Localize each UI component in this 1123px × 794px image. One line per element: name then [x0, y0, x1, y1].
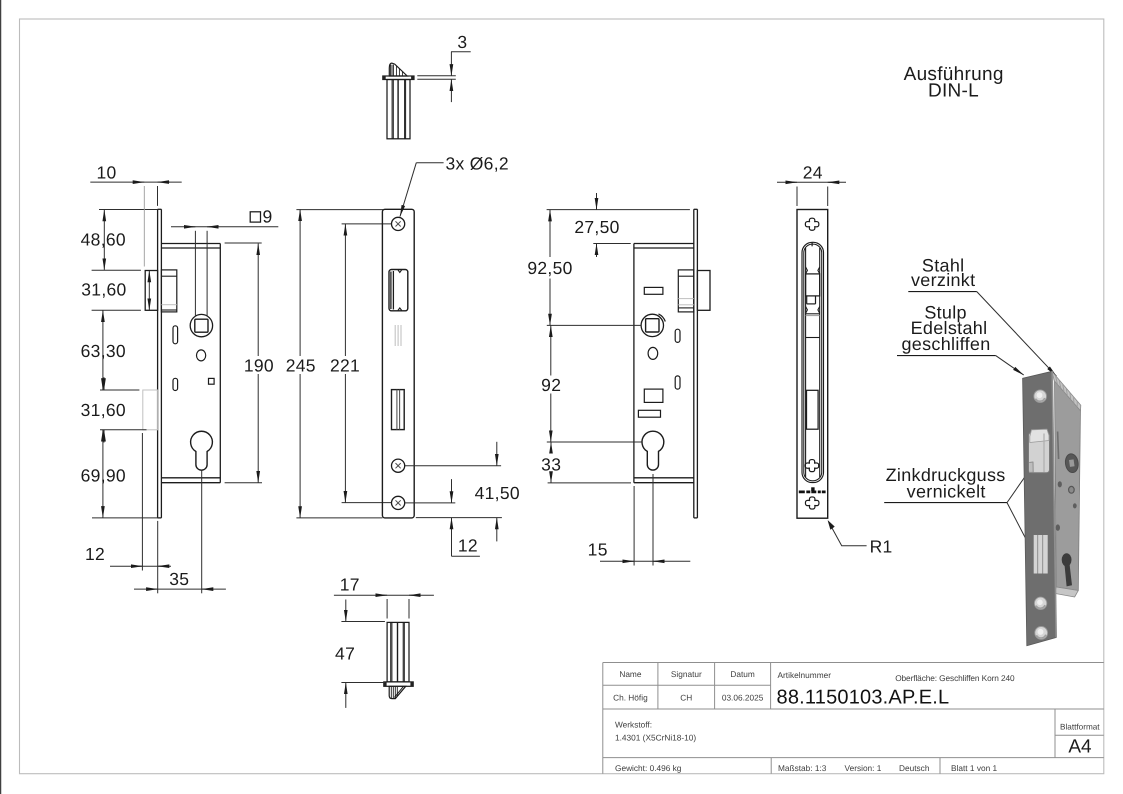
svg-text:Signatur: Signatur	[671, 669, 702, 679]
svg-text:Version: 1: Version: 1	[845, 763, 882, 773]
svg-text:3: 3	[457, 32, 467, 52]
svg-text:Blattformat: Blattformat	[1060, 722, 1100, 731]
svg-text:69,90: 69,90	[81, 465, 126, 485]
svg-text:1.4301 (X5CrNi18-10): 1.4301 (X5CrNi18-10)	[615, 733, 696, 743]
svg-text:9: 9	[262, 206, 272, 226]
svg-text:12: 12	[85, 544, 105, 564]
svg-text:Datum: Datum	[730, 669, 755, 679]
svg-text:12: 12	[458, 535, 478, 555]
svg-text:17: 17	[340, 575, 360, 595]
svg-text:vernickelt: vernickelt	[907, 482, 986, 502]
svg-text:Ch. Höfig: Ch. Höfig	[613, 692, 648, 702]
svg-text:221: 221	[330, 356, 360, 376]
svg-text:92,50: 92,50	[527, 258, 572, 278]
svg-text:Gewicht: 0.496 kg: Gewicht: 0.496 kg	[615, 763, 682, 773]
svg-text:CH: CH	[680, 692, 692, 702]
svg-text:Werkstoff:: Werkstoff:	[615, 720, 652, 730]
svg-text:3x Ø6,2: 3x Ø6,2	[446, 154, 509, 174]
svg-text:63,30: 63,30	[81, 341, 126, 361]
svg-text:Oberfläche: Geschliffen Korn: Oberfläche: Geschliffen Korn 240	[895, 673, 1015, 683]
svg-text:24: 24	[803, 162, 823, 182]
svg-text:48,60: 48,60	[81, 229, 126, 249]
svg-text:190: 190	[244, 356, 274, 376]
svg-text:31,60: 31,60	[81, 400, 126, 420]
svg-text:R1: R1	[870, 537, 893, 557]
svg-text:Artikelnummer: Artikelnummer	[778, 670, 832, 680]
svg-text:92: 92	[541, 375, 561, 395]
svg-text:27,50: 27,50	[574, 217, 619, 237]
svg-text:35: 35	[169, 569, 189, 589]
svg-text:Deutsch: Deutsch	[899, 763, 930, 773]
svg-text:Blatt 1 von 1: Blatt 1 von 1	[951, 763, 998, 773]
svg-text:DIN-L: DIN-L	[928, 80, 979, 101]
svg-text:245: 245	[286, 356, 316, 376]
svg-text:41,50: 41,50	[475, 483, 520, 503]
svg-text:47: 47	[335, 644, 355, 664]
svg-text:A4: A4	[1068, 736, 1092, 757]
svg-text:Name: Name	[619, 669, 642, 679]
svg-text:15: 15	[588, 539, 608, 559]
svg-text:33: 33	[541, 455, 561, 475]
svg-text:geschliffen: geschliffen	[901, 334, 990, 354]
svg-text:verzinkt: verzinkt	[911, 270, 975, 290]
svg-text:88.1150103.AP.E.L: 88.1150103.AP.E.L	[777, 687, 950, 709]
svg-text:03.06.2025: 03.06.2025	[722, 692, 764, 702]
svg-text:10: 10	[96, 163, 116, 183]
svg-text:Maßstab: 1:3: Maßstab: 1:3	[778, 763, 827, 773]
svg-text:31,60: 31,60	[81, 280, 126, 300]
